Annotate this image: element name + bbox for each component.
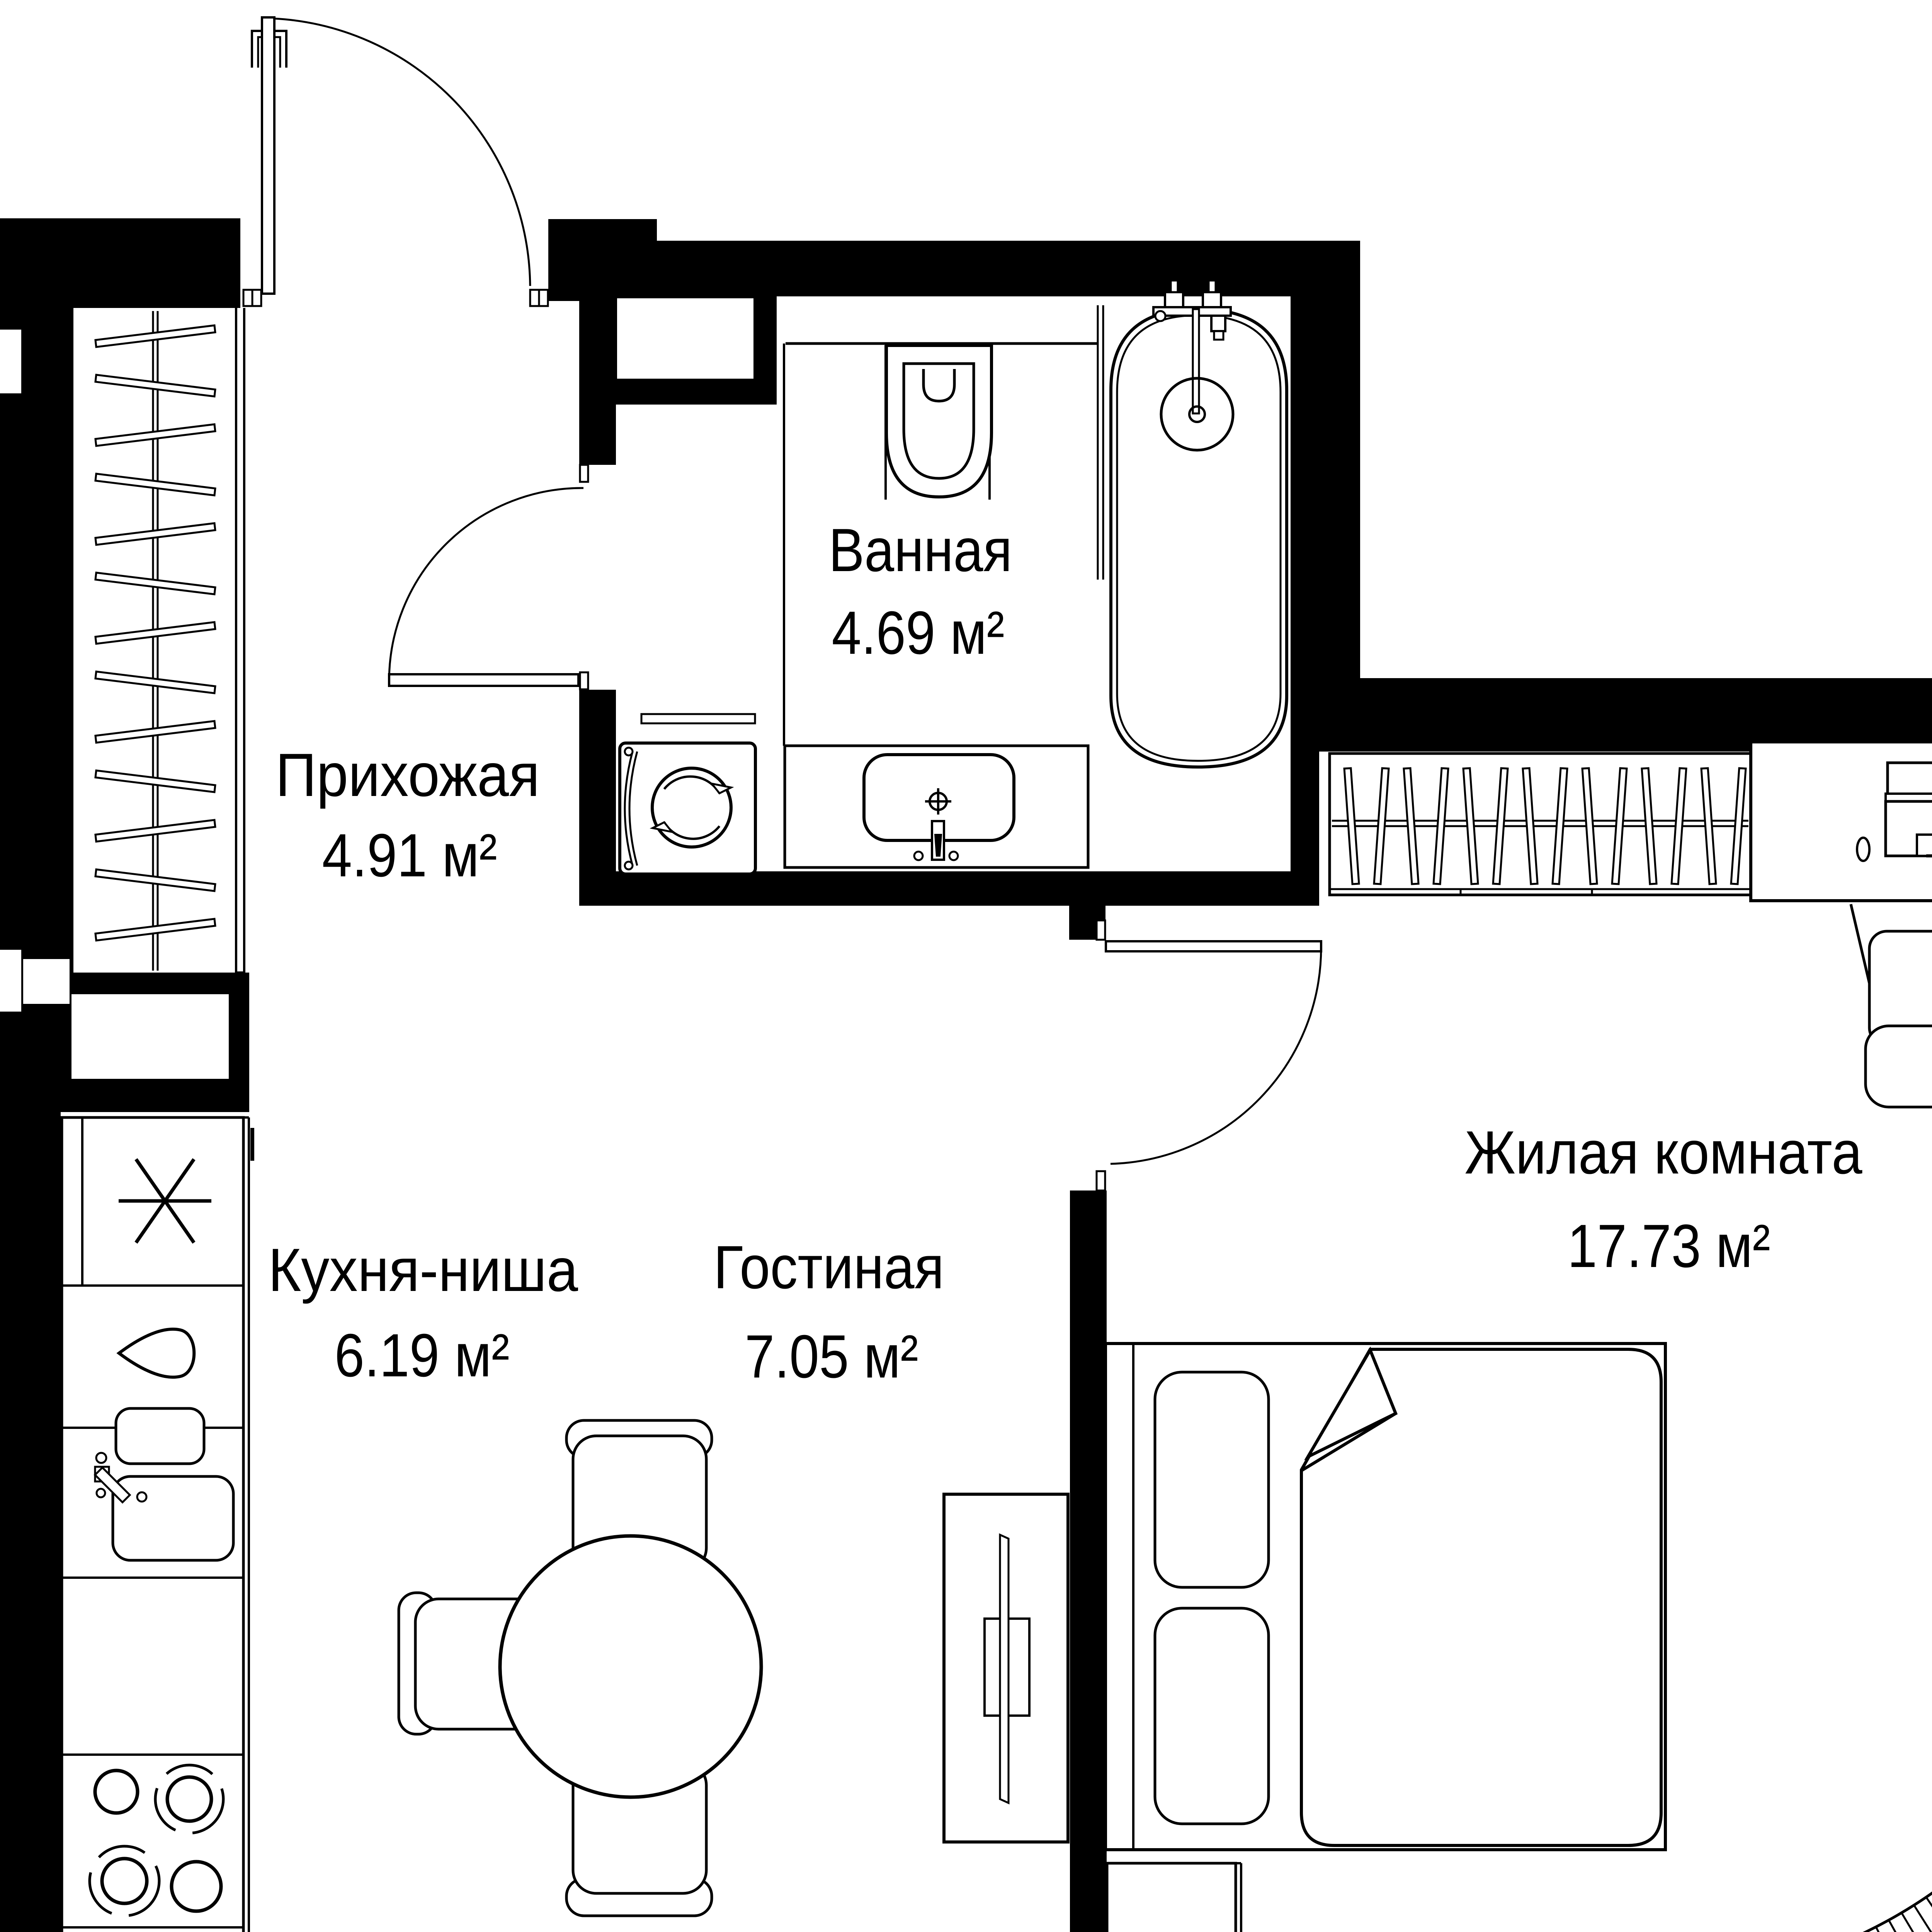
svg-text:Жилая комната: Жилая комната [1465,1119,1862,1187]
svg-text:4.69 м²: 4.69 м² [832,599,1005,667]
svg-text:6.19 м²: 6.19 м² [335,1321,510,1389]
svg-text:4.91 м²: 4.91 м² [322,821,497,889]
svg-text:Ванная: Ванная [829,516,1012,584]
svg-text:7.05 м²: 7.05 м² [745,1323,918,1391]
svg-text:17.73 м²: 17.73 м² [1568,1212,1770,1280]
svg-text:Кухня-ниша: Кухня-ниша [268,1236,578,1304]
svg-text:Прихожая: Прихожая [276,741,540,809]
svg-text:Гостиная: Гостиная [714,1233,944,1301]
